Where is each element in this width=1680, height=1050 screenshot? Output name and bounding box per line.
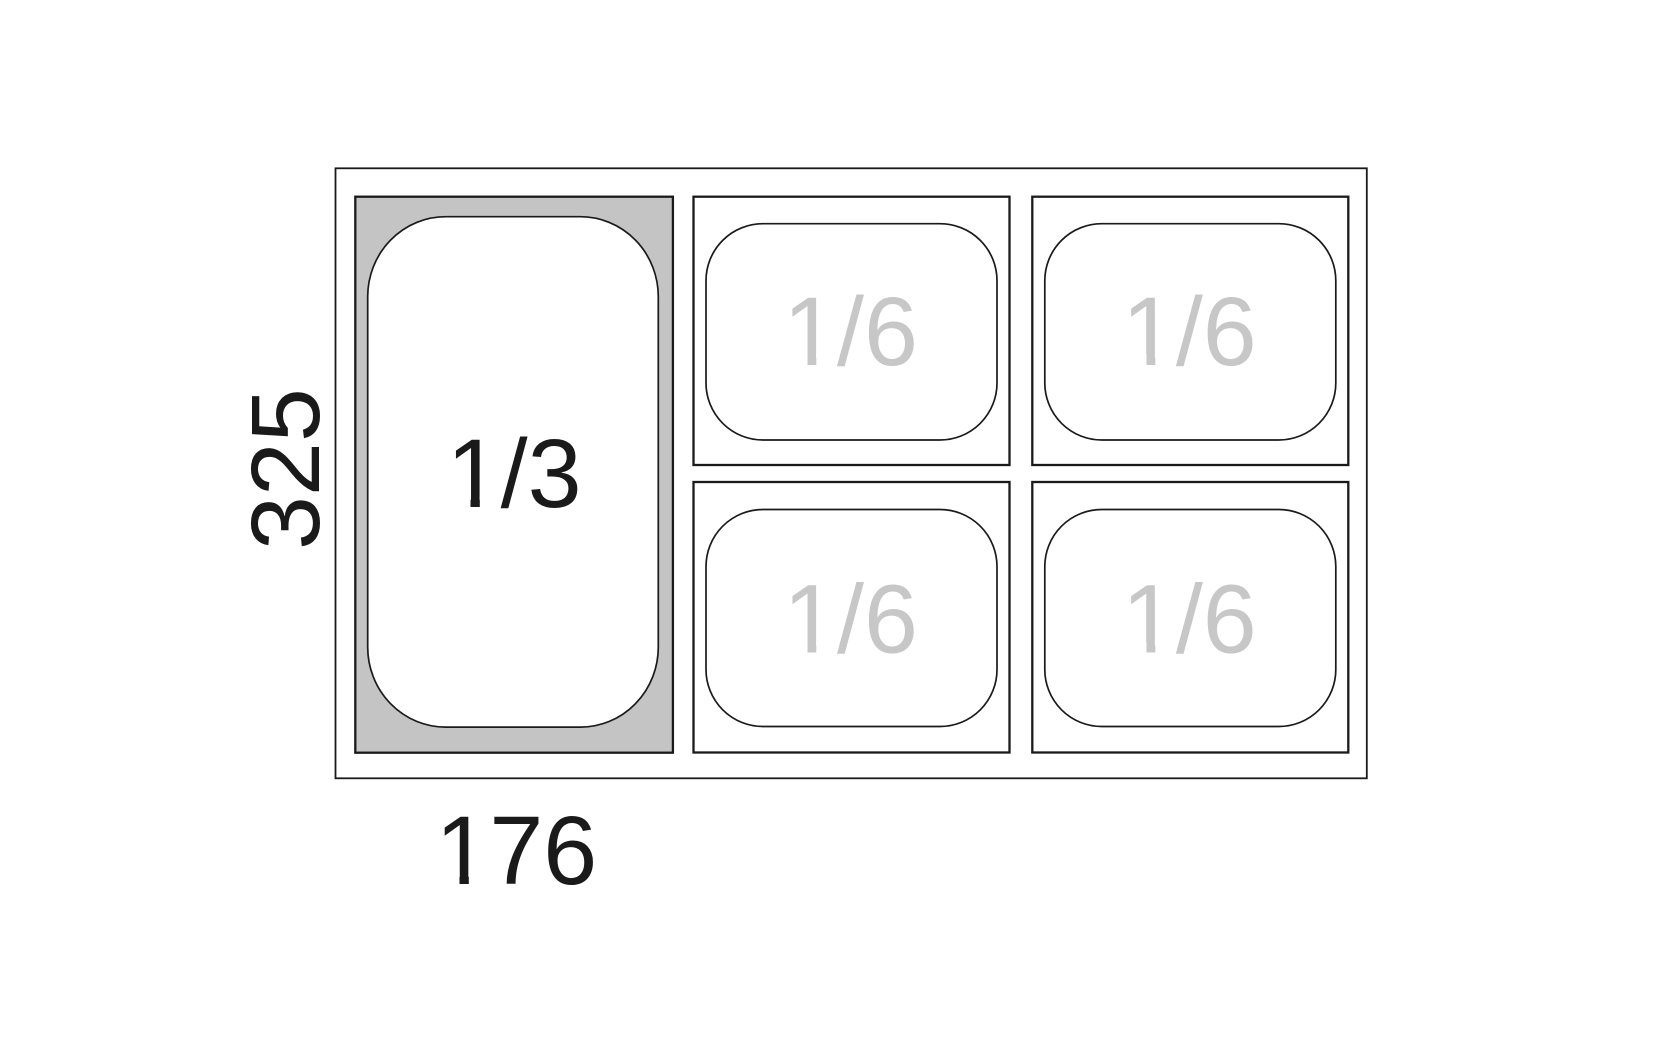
- svg-text:176: 176: [435, 796, 597, 905]
- svg-text:1/6: 1/6: [1122, 277, 1257, 386]
- svg-text:1/6: 1/6: [1122, 565, 1257, 674]
- svg-text:325: 325: [231, 388, 340, 550]
- svg-text:1/6: 1/6: [783, 565, 918, 674]
- svg-text:1/6: 1/6: [783, 277, 918, 386]
- svg-text:1/3: 1/3: [447, 419, 582, 528]
